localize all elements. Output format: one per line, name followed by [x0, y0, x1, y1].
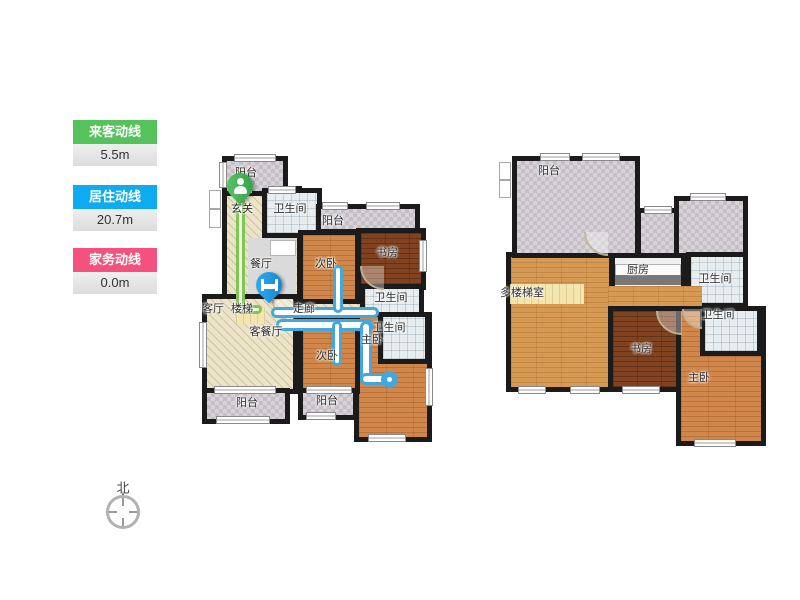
resident-route-endpoint — [381, 371, 398, 388]
window — [425, 368, 433, 406]
window — [306, 412, 336, 420]
window — [234, 154, 276, 162]
legend-visitor-route-distance: 5.5m — [73, 144, 157, 166]
room-label: 卫生间 — [702, 306, 735, 322]
window — [644, 206, 672, 214]
person-icon — [227, 173, 253, 199]
room-label: 厨房 — [627, 261, 649, 277]
window — [366, 202, 400, 210]
compass-tick — [129, 511, 137, 513]
room-label: 卫生间 — [274, 200, 307, 216]
room-label: 客厅 — [202, 300, 224, 316]
window — [540, 153, 570, 161]
room-label: 楼梯 — [231, 300, 253, 316]
floorplan-viewer: 来客动线 5.5m 居住动线 20.7m 家务动线 0.0m — [0, 0, 800, 600]
window — [368, 434, 406, 442]
terrace-door-leaf — [499, 180, 511, 198]
visitor-start-pin[interactable] — [222, 168, 259, 205]
room-label: 走廊 — [293, 300, 315, 316]
room-label: 阳台 — [538, 162, 560, 178]
entry-door-leaf — [209, 190, 221, 209]
room-stair-hall — [506, 252, 614, 392]
room-label: 书房 — [630, 340, 652, 356]
window — [622, 386, 660, 394]
bed-icon — [256, 272, 282, 298]
room-label: 卫生间 — [375, 289, 408, 305]
resident-start-pin[interactable] — [251, 267, 288, 304]
compass-tick — [122, 518, 124, 526]
room-label: 多楼梯室 — [500, 284, 544, 300]
room-label: 阳台 — [236, 394, 258, 410]
room-label: 次卧 — [315, 255, 337, 271]
window — [518, 386, 546, 394]
window — [216, 416, 270, 424]
terrace-door-leaf — [499, 162, 511, 180]
compass-north-label: 北 — [116, 478, 129, 497]
compass-tick — [109, 511, 117, 513]
compass-tick — [122, 498, 124, 506]
entry-door-leaf — [209, 209, 221, 228]
legend-resident-route: 居住动线 20.7m — [73, 185, 157, 231]
window — [690, 193, 726, 201]
window — [199, 322, 207, 368]
legend-housework-route: 家务动线 0.0m — [73, 248, 157, 294]
cabinet — [270, 240, 296, 256]
legend-resident-route-toggle[interactable]: 居住动线 — [73, 185, 157, 209]
room-label: 主卧 — [688, 369, 710, 385]
window — [419, 240, 427, 272]
window — [694, 439, 736, 447]
window — [570, 386, 600, 394]
room-label: 次卧 — [316, 347, 338, 363]
room-label: 阳台 — [316, 392, 338, 408]
room-label: 阳台 — [322, 212, 344, 228]
legend-visitor-route: 来客动线 5.5m — [73, 120, 157, 166]
room-label: 玄关 — [231, 200, 253, 216]
window — [268, 186, 296, 194]
resident-route-segment — [271, 307, 379, 318]
room-label: 卫生间 — [699, 270, 732, 286]
corridor-2-floor — [608, 286, 702, 306]
window — [322, 202, 348, 210]
window — [582, 153, 620, 161]
legend-resident-route-distance: 20.7m — [73, 209, 157, 231]
room-label: 书房 — [376, 244, 398, 260]
legend-housework-route-toggle[interactable]: 家务动线 — [73, 248, 157, 272]
resident-route-segment — [333, 265, 343, 313]
legend-visitor-route-toggle[interactable]: 来客动线 — [73, 120, 157, 144]
room-label: 卫生间 — [373, 319, 406, 335]
room-terrace-left — [512, 156, 640, 258]
legend-housework-route-distance: 0.0m — [73, 272, 157, 294]
window — [214, 386, 276, 394]
room-label: 客餐厅 — [250, 323, 283, 339]
room-label: 餐厅 — [250, 255, 272, 271]
room-terrace-right — [674, 196, 748, 258]
